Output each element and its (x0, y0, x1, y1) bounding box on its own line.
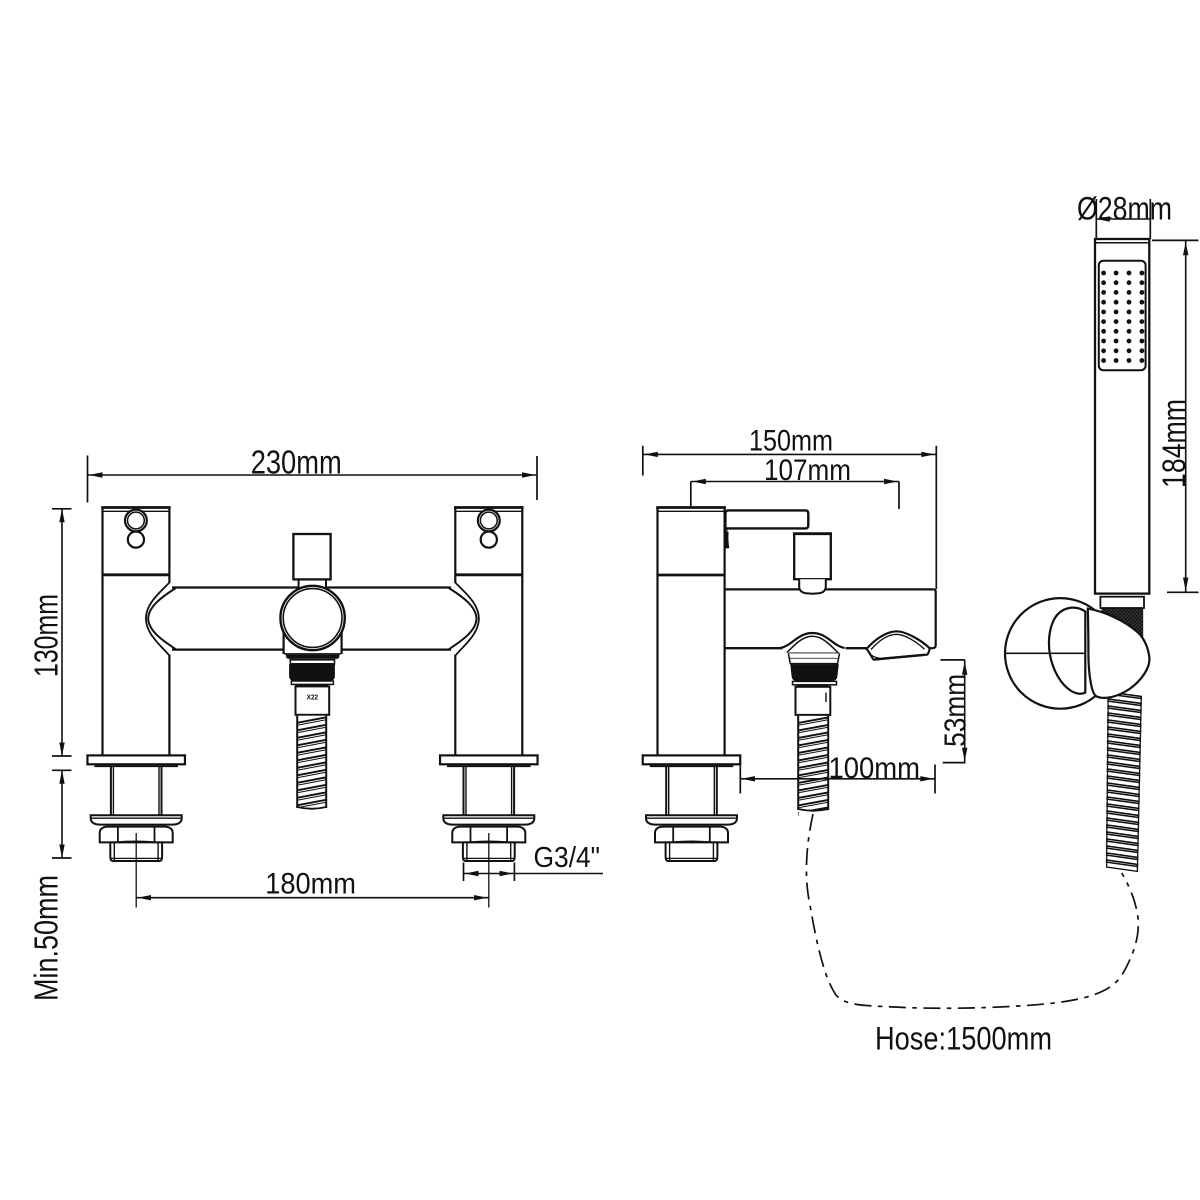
svg-text:G3/4": G3/4" (534, 842, 601, 874)
svg-text:Ø28mm: Ø28mm (1077, 190, 1172, 226)
svg-text:230mm: 230mm (251, 444, 342, 481)
svg-text:150mm: 150mm (749, 424, 833, 457)
svg-text:Hose:1500mm: Hose:1500mm (875, 1021, 1052, 1057)
svg-text:X22: X22 (307, 693, 319, 702)
svg-text:Min.50mm: Min.50mm (28, 875, 65, 1001)
svg-text:130mm: 130mm (28, 594, 65, 677)
svg-text:184mm: 184mm (1156, 399, 1192, 488)
svg-text:53mm: 53mm (937, 674, 972, 747)
svg-text:100mm: 100mm (828, 752, 920, 785)
svg-text:107mm: 107mm (764, 454, 851, 487)
svg-text:180mm: 180mm (265, 868, 356, 901)
